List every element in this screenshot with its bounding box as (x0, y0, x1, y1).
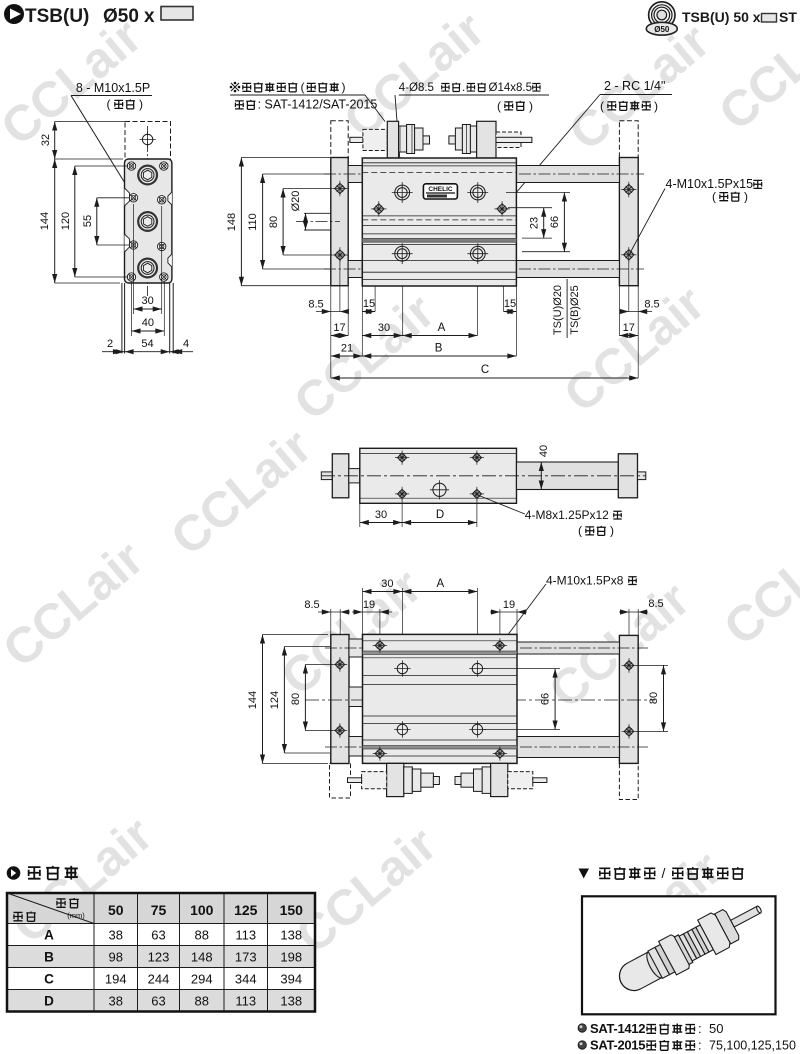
svg-text:4: 4 (183, 338, 189, 350)
svg-text:17: 17 (333, 322, 345, 334)
svg-text:x: x (144, 6, 155, 27)
svg-text:(: ( (600, 99, 604, 113)
svg-text:194: 194 (105, 972, 127, 987)
svg-text:40: 40 (538, 445, 550, 457)
svg-text:30: 30 (375, 509, 387, 521)
svg-text:TSB(U): TSB(U) (25, 6, 89, 27)
svg-text:): ) (342, 80, 346, 94)
svg-text:17: 17 (623, 322, 635, 334)
svg-text:150: 150 (280, 902, 304, 918)
svg-text:8.5: 8.5 (308, 299, 323, 311)
svg-text:38: 38 (109, 994, 123, 1009)
svg-text:8.5: 8.5 (648, 598, 663, 610)
svg-text:124: 124 (269, 691, 281, 709)
svg-text:SAT-1412: SAT-1412 (590, 1021, 645, 1036)
svg-text:198: 198 (280, 950, 302, 965)
svg-text:/: / (662, 865, 666, 881)
svg-text:): ) (744, 190, 748, 204)
svg-text:173: 173 (235, 950, 257, 965)
svg-text:80: 80 (268, 216, 280, 228)
svg-text:110: 110 (247, 213, 259, 231)
svg-text:88: 88 (195, 994, 209, 1009)
svg-text:C: C (481, 364, 489, 376)
svg-text::: : (698, 1021, 702, 1036)
svg-text:TS(U)Ø20: TS(U)Ø20 (552, 285, 564, 335)
svg-text:8 - M10x1.5P: 8 - M10x1.5P (76, 81, 150, 95)
svg-text:244: 244 (148, 972, 170, 987)
svg-text:15: 15 (363, 298, 375, 310)
svg-text:SAT-2015: SAT-2015 (590, 1038, 645, 1053)
svg-text:(: ( (497, 99, 501, 113)
svg-text:(: ( (107, 97, 111, 111)
svg-text:4-M10x1.5Px15: 4-M10x1.5Px15 (666, 177, 754, 191)
svg-text:113: 113 (235, 994, 256, 1009)
svg-text:CCLair: CCLair (713, 508, 800, 656)
svg-text:B: B (435, 343, 443, 355)
svg-text:75: 75 (151, 902, 167, 918)
svg-text:80: 80 (648, 692, 660, 704)
svg-text:CHELIC: CHELIC (428, 186, 453, 193)
svg-text:148: 148 (191, 950, 213, 965)
svg-text:344: 344 (235, 972, 257, 987)
svg-text:TSB(U) 50 x: TSB(U) 50 x (682, 9, 761, 25)
svg-text:(: ( (301, 80, 305, 94)
svg-text:66: 66 (549, 216, 561, 228)
svg-text:D: D (44, 994, 54, 1009)
svg-text:CCLair: CCLair (0, 530, 154, 678)
svg-text:2: 2 (107, 338, 113, 350)
svg-text:138: 138 (280, 928, 302, 943)
svg-text:38: 38 (109, 928, 123, 943)
svg-text:21: 21 (341, 343, 353, 355)
svg-text:80: 80 (290, 693, 302, 705)
svg-text:15: 15 (504, 298, 516, 310)
svg-text:TS(B)Ø25: TS(B)Ø25 (569, 285, 581, 335)
svg-text:4-M8x1.25Px12: 4-M8x1.25Px12 (525, 508, 609, 522)
svg-text:2 - RC 1/4": 2 - RC 1/4" (604, 79, 665, 93)
svg-text:Ø14x8.5: Ø14x8.5 (489, 82, 532, 94)
svg-text:123: 123 (148, 950, 170, 965)
svg-text:Ø20: Ø20 (290, 191, 302, 212)
svg-text:CCLair: CCLair (285, 816, 447, 964)
svg-text:): ) (529, 99, 533, 113)
svg-text:C: C (44, 972, 54, 987)
svg-text:CCLair: CCLair (1, 806, 163, 954)
svg-text:8.5: 8.5 (304, 599, 319, 611)
svg-text:): ) (610, 524, 614, 538)
svg-text:55: 55 (82, 215, 94, 227)
svg-text:30: 30 (141, 295, 153, 307)
svg-text:120: 120 (60, 212, 72, 230)
svg-text:144: 144 (39, 212, 51, 230)
svg-text:40: 40 (142, 317, 154, 329)
svg-text:88: 88 (195, 928, 209, 943)
svg-text:98: 98 (109, 950, 123, 965)
svg-text:50: 50 (108, 902, 124, 918)
svg-text:): ) (139, 97, 143, 111)
svg-text:75,100,125,150: 75,100,125,150 (709, 1039, 796, 1053)
svg-text:63: 63 (151, 994, 165, 1009)
svg-text:394: 394 (280, 972, 302, 987)
svg-text:63: 63 (151, 928, 165, 943)
svg-text:19: 19 (503, 599, 515, 611)
svg-text:: SAT-1412/SAT-2015: : SAT-1412/SAT-2015 (258, 98, 378, 112)
svg-text:Ø50: Ø50 (103, 6, 139, 27)
svg-text:CCLair: CCLair (160, 418, 322, 566)
svg-text:(: ( (712, 190, 716, 204)
svg-text:54: 54 (141, 338, 153, 350)
svg-text:113: 113 (235, 928, 256, 943)
svg-text:Ø50: Ø50 (654, 25, 670, 34)
svg-text:144: 144 (247, 691, 259, 709)
svg-text:50: 50 (709, 1021, 723, 1036)
svg-text:30: 30 (381, 578, 393, 590)
svg-text:4-M10x1.5Px8: 4-M10x1.5Px8 (546, 574, 624, 588)
svg-text:125: 125 (234, 902, 258, 918)
svg-text:30: 30 (378, 322, 390, 334)
svg-text:): ) (654, 99, 658, 113)
svg-text:32: 32 (40, 134, 52, 146)
svg-text:A: A (436, 578, 444, 590)
svg-text:148: 148 (226, 213, 238, 231)
svg-text:(mm): (mm) (67, 911, 85, 920)
svg-text:23: 23 (529, 217, 541, 229)
svg-text::: : (698, 1038, 702, 1053)
svg-text:8.5: 8.5 (644, 299, 659, 311)
svg-text:4-Ø8.5: 4-Ø8.5 (399, 82, 434, 94)
svg-text:294: 294 (191, 972, 213, 987)
svg-text:.: . (462, 82, 465, 94)
svg-text:A: A (438, 322, 446, 334)
svg-text:66: 66 (540, 693, 552, 705)
svg-text:ST: ST (779, 9, 797, 25)
svg-text:19: 19 (363, 599, 375, 611)
svg-text:D: D (436, 509, 444, 521)
svg-text:(: ( (578, 524, 582, 538)
svg-text:B: B (44, 950, 54, 965)
svg-text:100: 100 (190, 902, 214, 918)
svg-text:A: A (44, 928, 54, 943)
svg-text:138: 138 (280, 994, 302, 1009)
